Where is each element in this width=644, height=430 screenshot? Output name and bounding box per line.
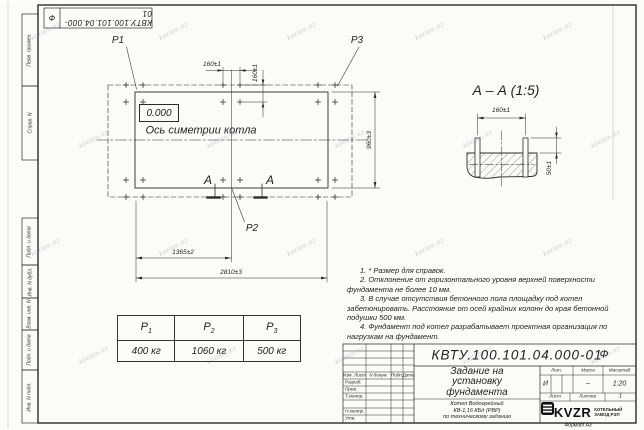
loads-table: P1 P2 P3 400 кг 1060 кг 500 кг (117, 315, 301, 362)
dim-width-960: 960±3 (367, 131, 374, 149)
col-izm-list: Изм. Лист (343, 373, 366, 378)
top-stamp-suffix: Ф (44, 8, 60, 28)
section-letter-right: А (266, 174, 274, 186)
mass-value: – (586, 381, 590, 388)
loads-header-p2: P2 (175, 316, 243, 341)
note-2: 2. Отклонение от горизонтального уровня … (347, 275, 636, 294)
level-mark: 0.000 (139, 104, 179, 122)
side-column-perv-primen: Перв. примен. (22, 14, 38, 86)
symmetry-axis-caption: Ось симетрии котла (145, 126, 256, 137)
section-letter-left: А (204, 174, 212, 186)
dim-bolt-spacing-v: 160±1 (253, 64, 260, 82)
kvzr-logo-mark (541, 402, 554, 415)
loads-table-header-row: P1 P2 P3 (118, 316, 301, 341)
sheet-label: Лист (549, 395, 561, 400)
format-label: Формат А3 (564, 424, 591, 429)
company-logo: KVZR КОТЕЛЬНЫЙ ЗАВОД РЭП (541, 402, 635, 422)
sheets-label: Листов (579, 395, 596, 400)
load-point-p1-label: P1 (112, 36, 124, 46)
dim-half-length-1365: 1365±2 (172, 250, 194, 257)
loads-value-p2: 1060 кг (175, 341, 243, 362)
load-point-p3-label: P3 (351, 36, 363, 46)
side-column-inv-podl: Инв. N подл. (22, 370, 38, 423)
lit-label: Лит. (551, 368, 562, 373)
side-column-inv-dubl: Инв. N дубл. (22, 265, 38, 298)
company-subname: КОТЕЛЬНЫЙ ЗАВОД РЭП (594, 407, 622, 417)
lit-value: И (543, 381, 548, 388)
row-prov: Пров. (345, 387, 357, 392)
side-column-vzam-inv: Взам. инв. N (22, 298, 38, 330)
scale-value: 1:20 (613, 381, 627, 388)
col-data: Дата (402, 373, 414, 378)
doc-number: КВТУ.100.101.04.000-01 (432, 348, 603, 362)
doc-title: Задание на установку фундамента (414, 366, 540, 399)
top-stamp-number: КВТУ.100.101.04.000-01 (60, 8, 152, 28)
loads-value-p3: 500 кг (243, 341, 300, 362)
side-column-podp-data-2: Подп. и дата (22, 330, 38, 370)
load-point-p2-label: P2 (246, 224, 258, 234)
section-dim-protrusion: 50±1 (547, 161, 554, 175)
notes: 1. * Размер для справок. 2. Отклонение о… (347, 266, 636, 341)
section-dim-bolt: 160±1 (492, 108, 510, 115)
col-podp: Подп. (391, 373, 403, 378)
row-tkontr: Т.контр. (345, 394, 364, 399)
section-title: А – А (1:5) (473, 83, 540, 97)
note-4: 4. Фундамент под котел разрабатывает про… (347, 322, 636, 341)
doc-suffix: Ф (600, 350, 609, 361)
row-razrab: Разраб. (345, 380, 362, 385)
dim-bolt-spacing-h: 160±1 (203, 62, 221, 69)
col-n-dokum: N докум. (369, 373, 388, 378)
loads-value-p1: 400 кг (118, 341, 175, 362)
drawing-sheet: kotlam.kzkotlam.kzkotlam.kzkotlam.kzkotl… (0, 0, 644, 430)
loads-header-p3: P3 (243, 316, 300, 341)
row-nkontr: Н.контр. (345, 409, 364, 414)
sheets-value: 1 (619, 394, 622, 400)
side-column-podp-data-1: Подп. и дата (22, 218, 38, 265)
loads-header-p1: P1 (118, 316, 175, 341)
loads-table-value-row: 400 кг 1060 кг 500 кг (118, 341, 301, 362)
mass-label: Масса (581, 368, 595, 373)
note-3: 3. В случае отсутствия бетонного пола пл… (347, 294, 636, 322)
side-column-sprav-n: Справ. N (22, 86, 38, 160)
row-utv: Утв. (345, 417, 355, 422)
company-name: KVZR (554, 405, 591, 420)
note-1: 1. * Размер для справок. (347, 266, 636, 275)
scale-label: Масштаб (609, 368, 630, 373)
dim-length-2810: 2810±3 (220, 270, 242, 277)
doc-subtitle: Котел Водогрейный КВ-1,16 КБд (РВР) по т… (414, 399, 540, 423)
